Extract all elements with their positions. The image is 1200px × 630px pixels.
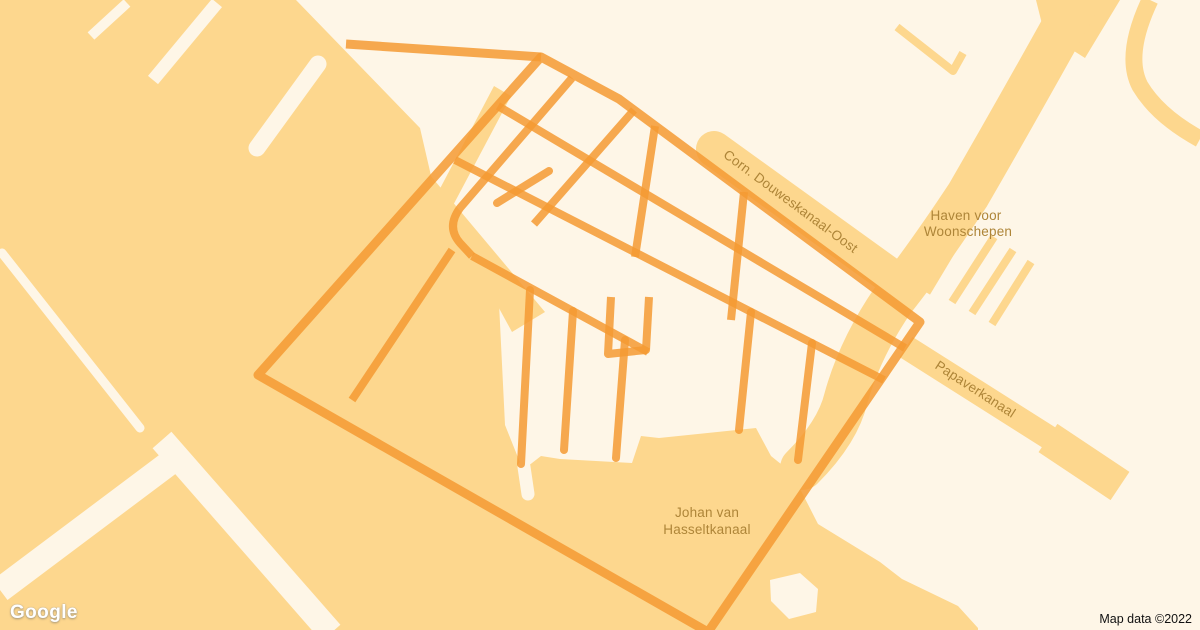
label-johan-van-hasseltkanaal-line2: Hasseltkanaal [663,522,750,537]
label-haven-voor-woonschepen-line1: Haven voor [930,208,1001,223]
label-johan-van-hasseltkanaal-line1: Johan van [675,505,739,520]
small-pier-rounded [524,467,528,494]
map-image: Corn. Douweskanaal-Oost Haven voor Woons… [0,0,1200,630]
map-canvas[interactable]: Corn. Douweskanaal-Oost Haven voor Woons… [0,0,1200,630]
label-haven-voor-woonschepen-line2: Woonschepen [924,224,1012,239]
google-logo[interactable]: Google [10,602,78,624]
map-attribution: Map data ©2022 [1099,612,1192,626]
